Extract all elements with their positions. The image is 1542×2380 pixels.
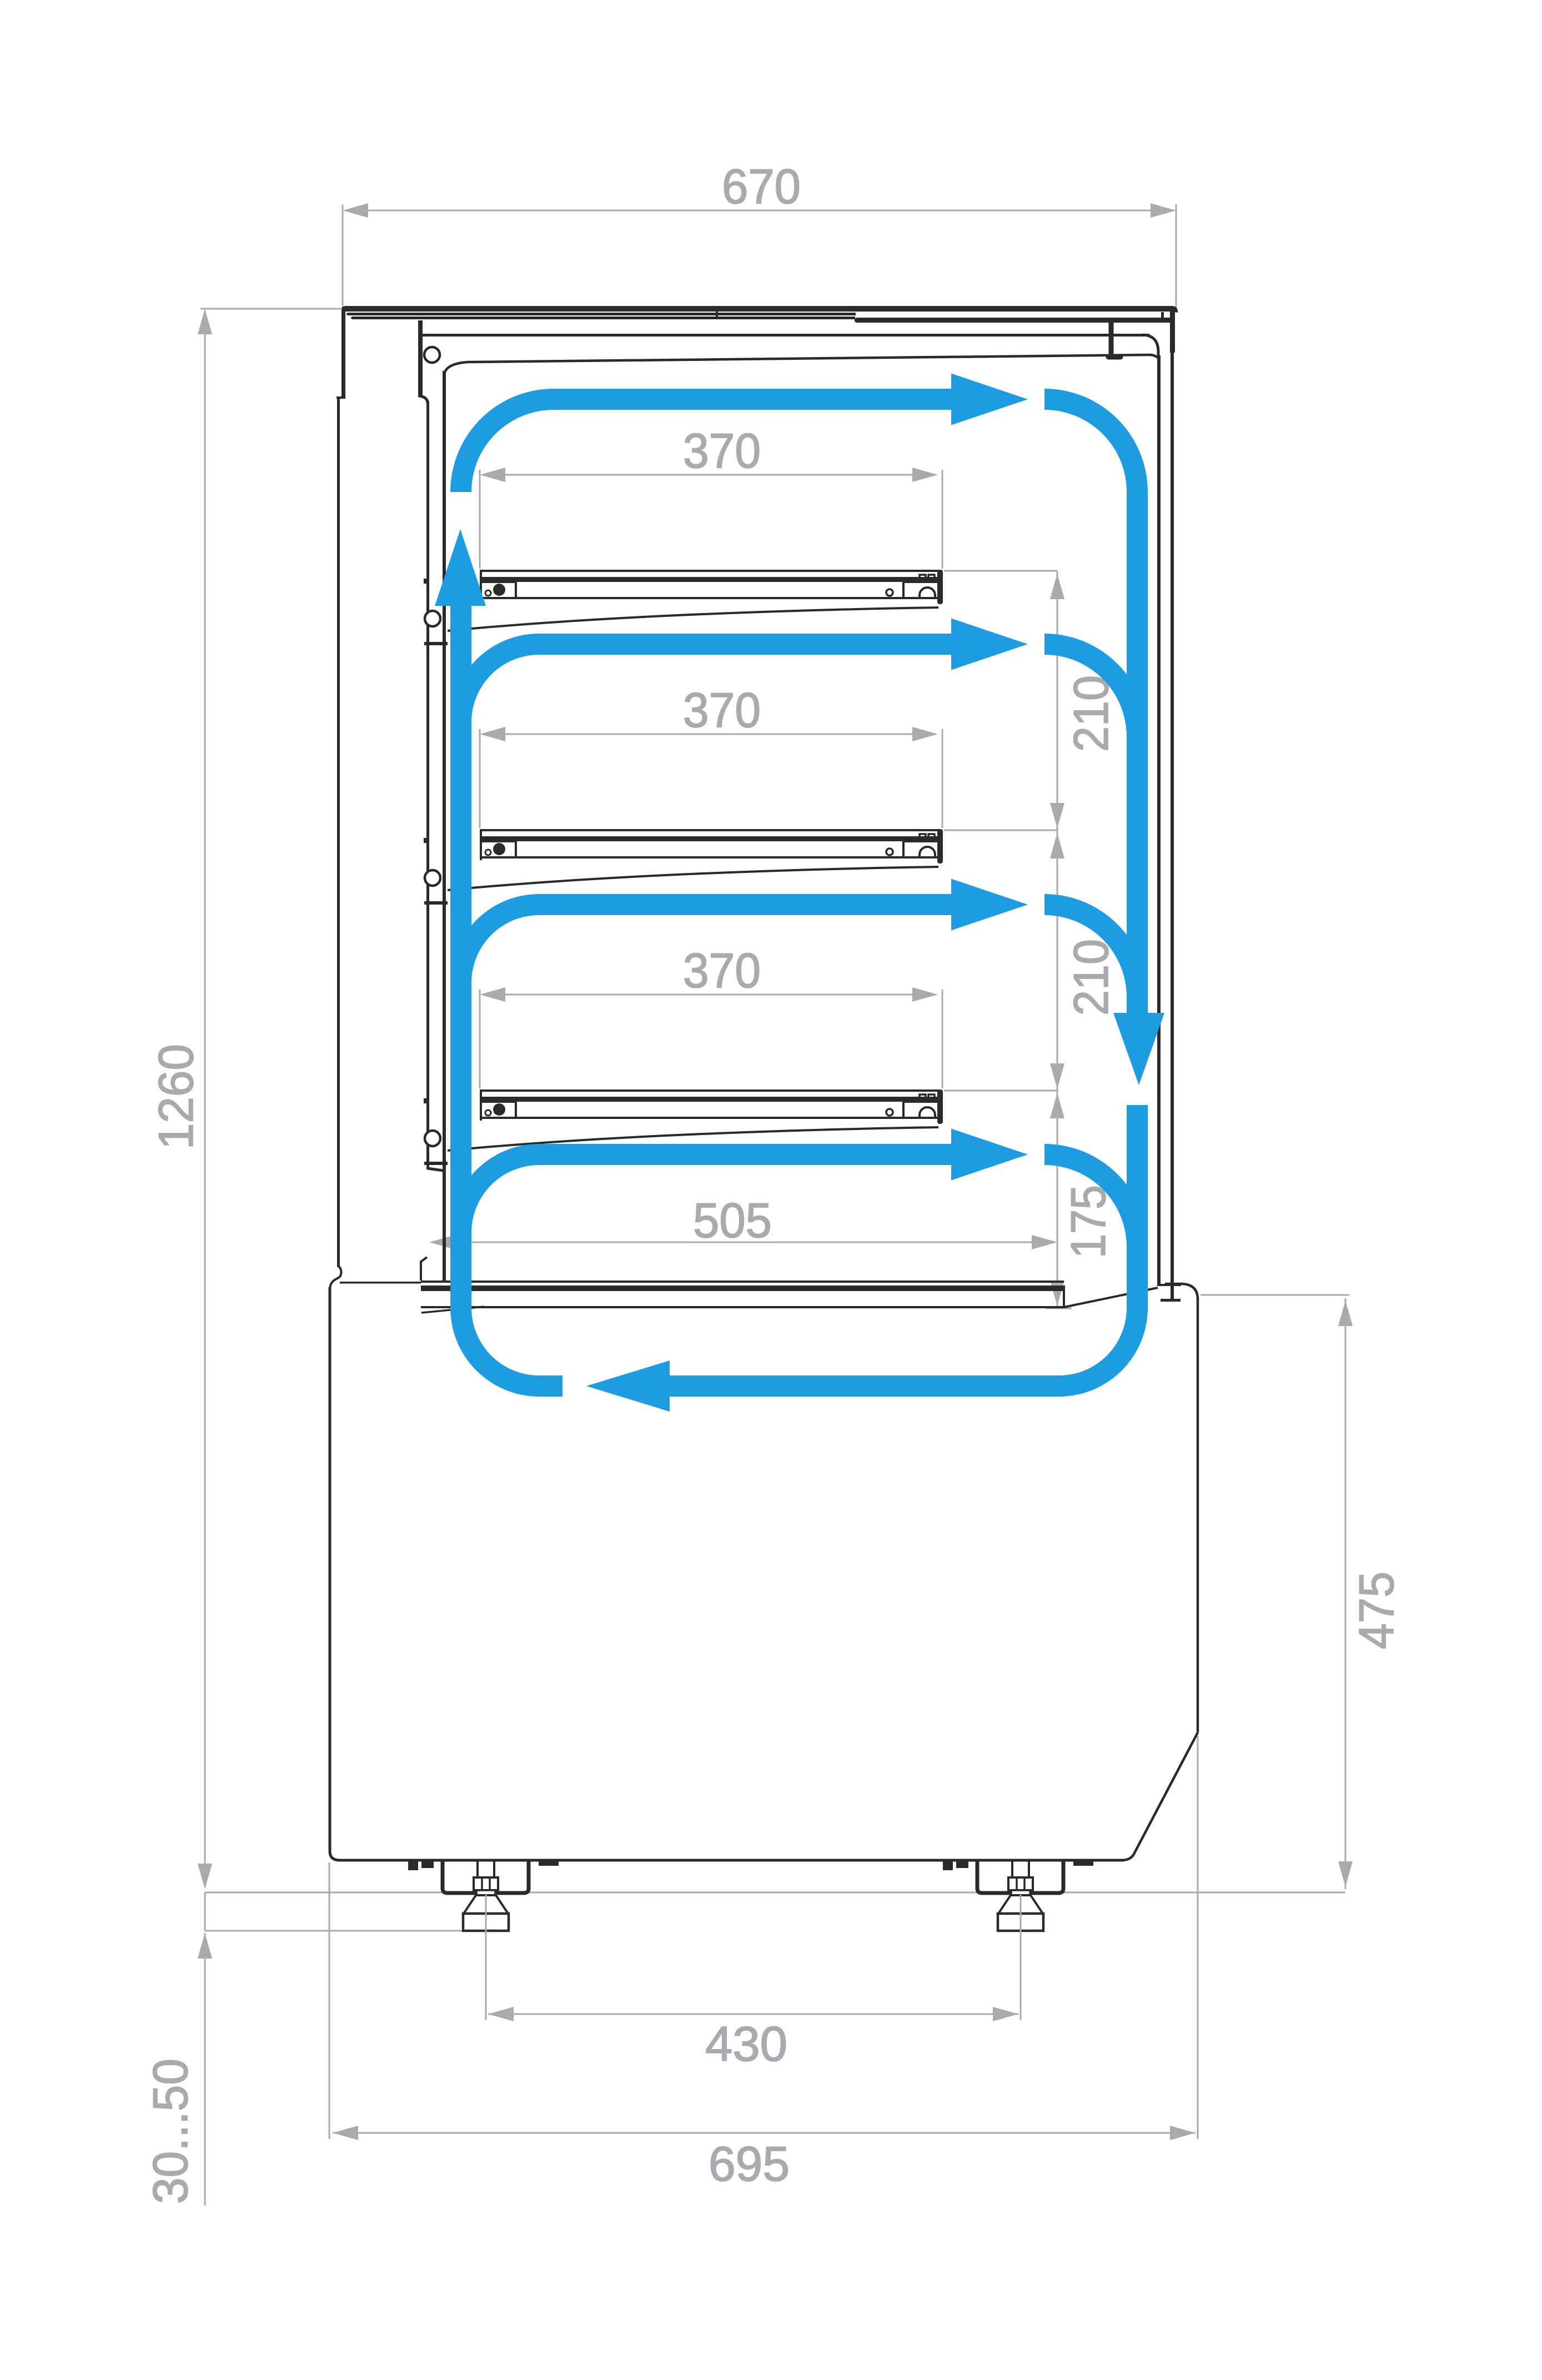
svg-text:210: 210 [1063, 939, 1118, 1016]
svg-text:505: 505 [693, 1193, 772, 1248]
svg-text:475: 475 [1349, 1571, 1404, 1649]
svg-text:175: 175 [1061, 1185, 1116, 1258]
svg-text:430: 430 [705, 2016, 787, 2071]
svg-text:370: 370 [683, 423, 761, 478]
svg-text:1260: 1260 [148, 1044, 203, 1149]
svg-text:30...50: 30...50 [143, 2058, 198, 2204]
svg-text:370: 370 [683, 943, 761, 998]
svg-text:370: 370 [683, 682, 761, 737]
svg-text:695: 695 [709, 2136, 790, 2191]
svg-text:670: 670 [722, 159, 801, 214]
